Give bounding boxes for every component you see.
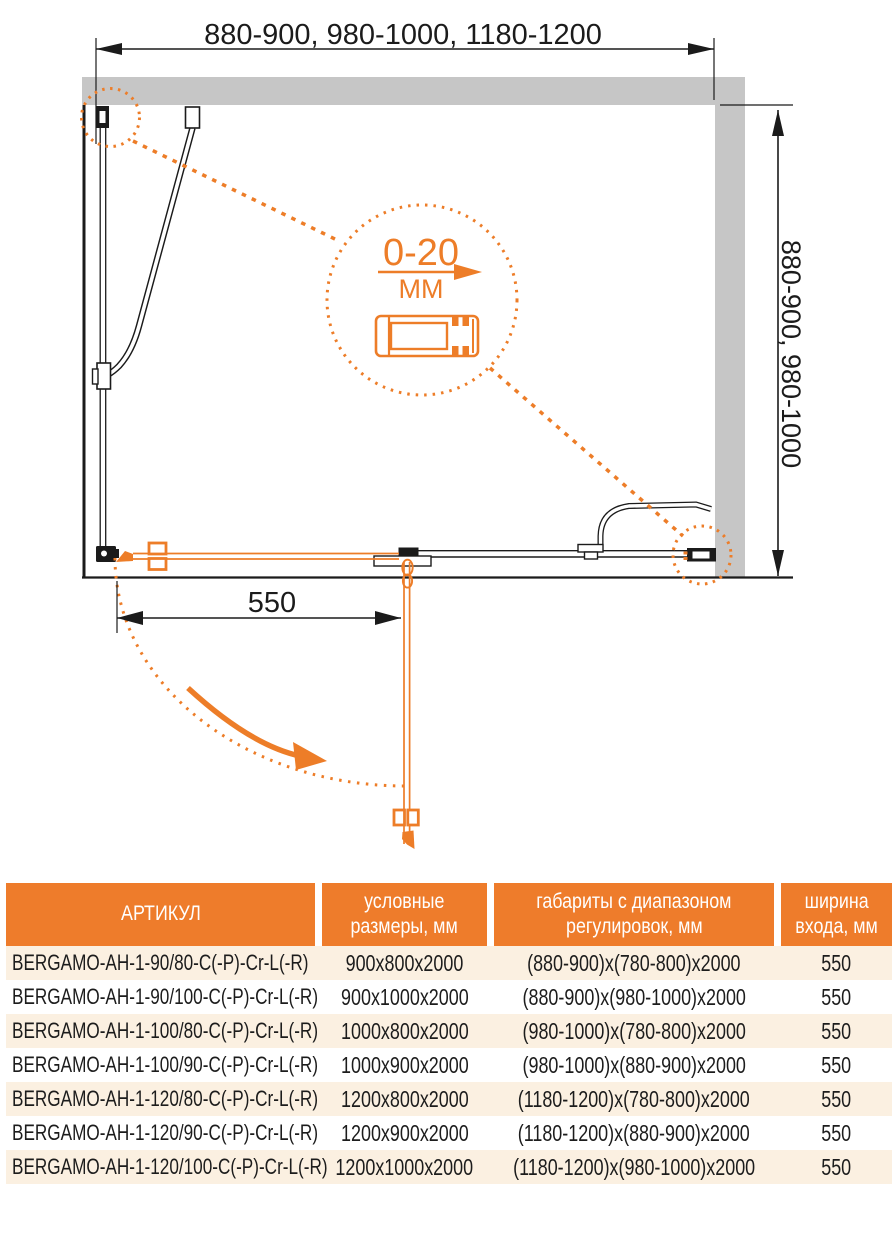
arrowhead-up bbox=[772, 110, 784, 136]
walls bbox=[82, 77, 745, 577]
adjustment-range-label: 0-20 bbox=[383, 232, 459, 274]
cell-article: BERGAMO-AH-1-120/100-C(-P)-Cr-L(-R) bbox=[6, 1150, 315, 1184]
support-bar-glass-clamp bbox=[97, 363, 111, 389]
cell-entry-width: 550 bbox=[781, 980, 892, 1014]
entry-width-label: 550 bbox=[248, 587, 296, 619]
fixed-panel-left bbox=[100, 128, 106, 546]
depth-range-label: 880-900, 980-1000 bbox=[776, 240, 806, 468]
table-row: BERGAMO-AH-1-100/80-C(-P)-Cr-L(-R) 1000x… bbox=[6, 1014, 892, 1048]
cell-size: 900x1000x2000 bbox=[322, 980, 487, 1014]
width-range-label: 880-900, 980-1000, 1180-1200 bbox=[204, 19, 602, 51]
support-bar-wall-mount bbox=[186, 107, 200, 128]
callout-leaders bbox=[82, 89, 732, 585]
cell-article: BERGAMO-AH-1-120/90-C(-P)-Cr-L(-R) bbox=[6, 1116, 315, 1150]
support-bar bbox=[93, 107, 200, 389]
wall-right bbox=[715, 77, 745, 577]
swing-arrowhead bbox=[293, 742, 327, 770]
arrowhead-left bbox=[96, 43, 122, 55]
cell-range: (880-900)x(980-1000)x2000 bbox=[494, 980, 774, 1014]
arrowhead-right bbox=[688, 43, 714, 55]
wall-top bbox=[82, 77, 745, 105]
cell-article: BERGAMO-AH-1-90/100-C(-P)-Cr-L(-R) bbox=[6, 980, 315, 1014]
table-header-row: АРТИКУЛ условные размеры, мм габариты с … bbox=[6, 883, 892, 946]
dimension-entry-width: 550 bbox=[117, 581, 401, 633]
door-bottom-cap bbox=[402, 831, 415, 850]
product-diagram: 880-900, 980-1000, 1180-1200 880-900, 98… bbox=[0, 0, 892, 883]
adjustment-profile-drawing bbox=[376, 316, 478, 356]
cell-entry-width: 550 bbox=[781, 1014, 892, 1048]
header-article: АРТИКУЛ bbox=[6, 883, 315, 946]
arrowhead-down bbox=[772, 550, 784, 576]
cell-size: 900x800x2000 bbox=[322, 946, 487, 980]
cell-range: (980-1000)x(880-900)x2000 bbox=[494, 1048, 774, 1082]
cell-entry-width: 550 bbox=[781, 1048, 892, 1082]
wall-profile-top-left bbox=[96, 106, 110, 128]
spec-table: АРТИКУЛ условные размеры, мм габариты с … bbox=[6, 883, 892, 1184]
cell-entry-width: 550 bbox=[781, 946, 892, 980]
header-range: габариты с диапазоном регулировок, мм bbox=[494, 883, 774, 946]
table-row: BERGAMO-AH-1-90/100-C(-P)-Cr-L(-R) 900x1… bbox=[6, 980, 892, 1014]
cell-entry-width: 550 bbox=[781, 1150, 892, 1184]
header-article-label: АРТИКУЛ bbox=[121, 902, 201, 926]
cell-range: (1180-1200)x(880-900)x2000 bbox=[494, 1116, 774, 1150]
wall-profile-bottom-right bbox=[684, 548, 717, 562]
cell-size: 1000x800x2000 bbox=[322, 1014, 487, 1048]
table-row: BERGAMO-AH-1-100/90-C(-P)-Cr-L(-R) 1000x… bbox=[6, 1048, 892, 1082]
table-row: BERGAMO-AH-1-120/100-C(-P)-Cr-L(-R) 1200… bbox=[6, 1150, 892, 1184]
header-size: условные размеры, мм bbox=[322, 883, 487, 946]
cell-article: BERGAMO-AH-1-100/90-C(-P)-Cr-L(-R) bbox=[6, 1048, 315, 1082]
swing-arrow bbox=[188, 688, 300, 756]
header-entry-width: ширина входа, мм bbox=[781, 883, 892, 946]
cell-size: 1200x800x2000 bbox=[322, 1082, 487, 1116]
door-hinge-plate-bottom bbox=[149, 559, 166, 570]
door-closed-position bbox=[116, 543, 399, 570]
door-hinge-plate-top bbox=[149, 543, 166, 554]
door-open-position bbox=[394, 562, 418, 849]
cell-size: 1200x900x2000 bbox=[322, 1116, 487, 1150]
cell-entry-width: 550 bbox=[781, 1082, 892, 1116]
cell-entry-width: 550 bbox=[781, 1116, 892, 1150]
arrowhead-right bbox=[375, 611, 401, 625]
fixed-panel-bottom bbox=[417, 551, 688, 557]
adjustment-arrowhead bbox=[454, 264, 482, 280]
cell-size: 1200x1000x2000 bbox=[322, 1150, 487, 1184]
adjustment-detail: 0-20 ММ bbox=[376, 232, 482, 356]
door-handle-plate-left bbox=[394, 810, 405, 825]
shower-enclosure-spec-sheet: 880-900, 980-1000, 1180-1200 880-900, 98… bbox=[0, 0, 892, 1237]
cell-article: BERGAMO-AH-1-120/80-C(-P)-Cr-L(-R) bbox=[6, 1082, 315, 1116]
cell-article: BERGAMO-AH-1-100/80-C(-P)-Cr-L(-R) bbox=[6, 1014, 315, 1048]
table-row: BERGAMO-AH-1-120/80-C(-P)-Cr-L(-R) 1200x… bbox=[6, 1082, 892, 1116]
cell-size: 1000x900x2000 bbox=[322, 1048, 487, 1082]
cell-range: (1180-1200)x(980-1000)x2000 bbox=[494, 1150, 774, 1184]
adjustment-unit-label: ММ bbox=[399, 274, 444, 304]
door-handle-plate-right bbox=[408, 810, 419, 825]
cell-article: BERGAMO-AH-1-90/80-C(-P)-Cr-L(-R) bbox=[6, 946, 315, 980]
cell-range: (980-1000)x(780-800)x2000 bbox=[494, 1014, 774, 1048]
table-row: BERGAMO-AH-1-120/90-C(-P)-Cr-L(-R) 1200x… bbox=[6, 1116, 892, 1150]
cell-range: (1180-1200)x(780-800)x2000 bbox=[494, 1082, 774, 1116]
cell-range: (880-900)x(780-800)x2000 bbox=[494, 946, 774, 980]
arrowhead-left bbox=[117, 611, 143, 625]
table-row: BERGAMO-AH-1-90/80-C(-P)-Cr-L(-R) 900x80… bbox=[6, 946, 892, 980]
